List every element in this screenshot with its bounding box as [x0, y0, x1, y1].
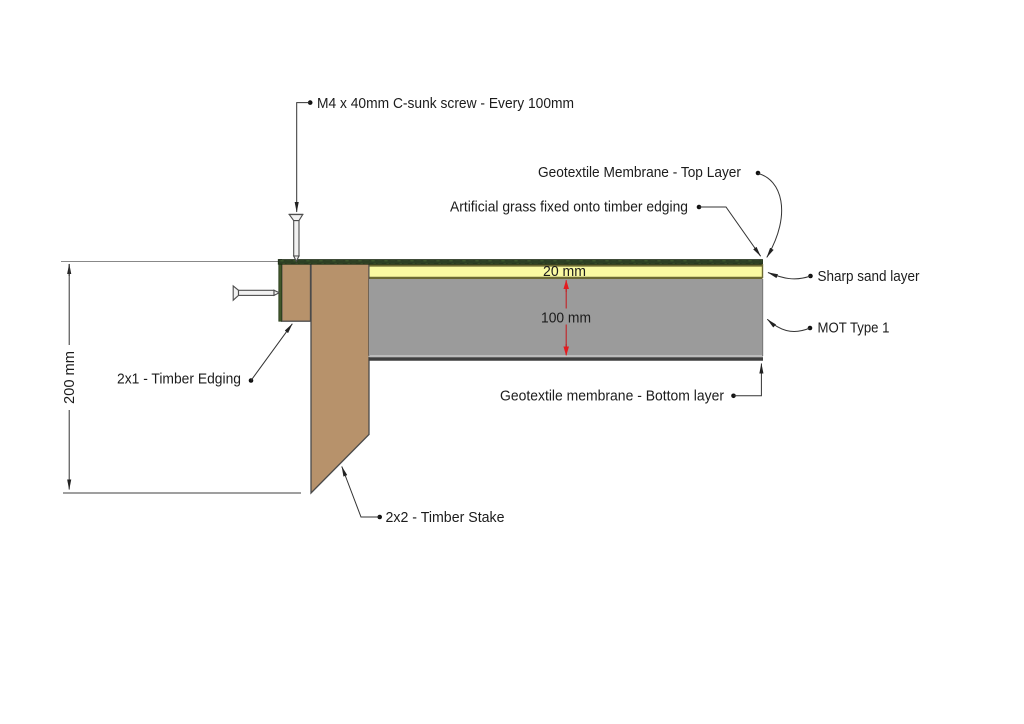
svg-text:200 mm: 200 mm: [62, 351, 78, 404]
svg-text:100 mm: 100 mm: [541, 311, 591, 327]
svg-text:Geotextile Membrane - Top Laye: Geotextile Membrane - Top Layer: [538, 165, 741, 181]
svg-text:Artificial grass fixed onto ti: Artificial grass fixed onto timber edgin…: [450, 200, 688, 216]
svg-text:MOT Type 1: MOT Type 1: [818, 321, 890, 337]
svg-text:Geotextile membrane - Bottom l: Geotextile membrane - Bottom layer: [500, 389, 724, 405]
svg-text:Sharp sand layer: Sharp sand layer: [818, 269, 920, 285]
svg-text:2x2 - Timber Stake: 2x2 - Timber Stake: [386, 510, 505, 526]
svg-text:M4 x 40mm C-sunk screw - Every: M4 x 40mm C-sunk screw - Every 100mm: [317, 96, 574, 112]
svg-text:20 mm: 20 mm: [543, 264, 586, 280]
svg-text:2x1 - Timber Edging: 2x1 - Timber Edging: [117, 372, 241, 388]
